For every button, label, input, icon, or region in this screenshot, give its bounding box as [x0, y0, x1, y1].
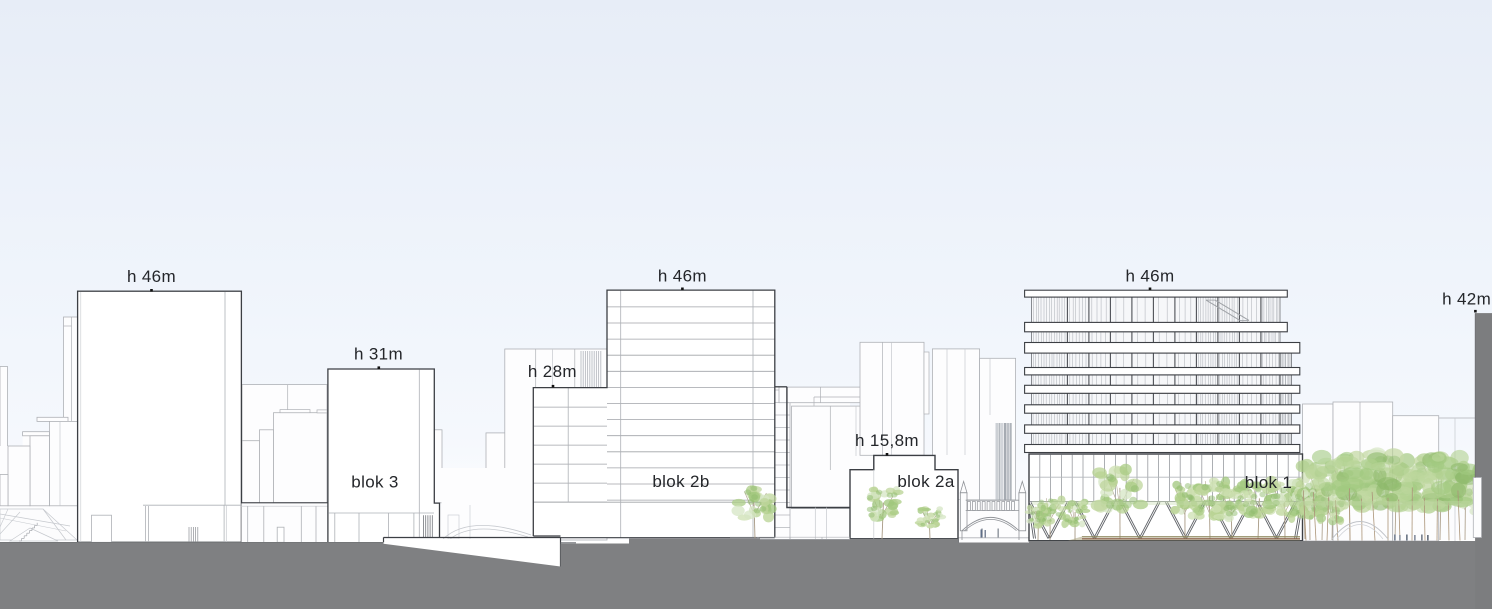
svg-text:h 46m: h 46m	[127, 267, 176, 286]
svg-text:h 46m: h 46m	[1126, 267, 1175, 286]
svg-text:h 42m: h 42m	[1442, 290, 1491, 309]
svg-text:h 46m: h 46m	[658, 267, 707, 286]
svg-text:blok 1: blok 1	[1245, 473, 1292, 492]
svg-text:blok 2b: blok 2b	[652, 472, 709, 491]
svg-text:h 28m: h 28m	[528, 362, 577, 381]
svg-text:blok 2a: blok 2a	[897, 472, 954, 491]
svg-text:h 31m: h 31m	[354, 345, 403, 364]
svg-text:h 15,8m: h 15,8m	[855, 431, 919, 450]
svg-text:blok 3: blok 3	[351, 473, 398, 492]
